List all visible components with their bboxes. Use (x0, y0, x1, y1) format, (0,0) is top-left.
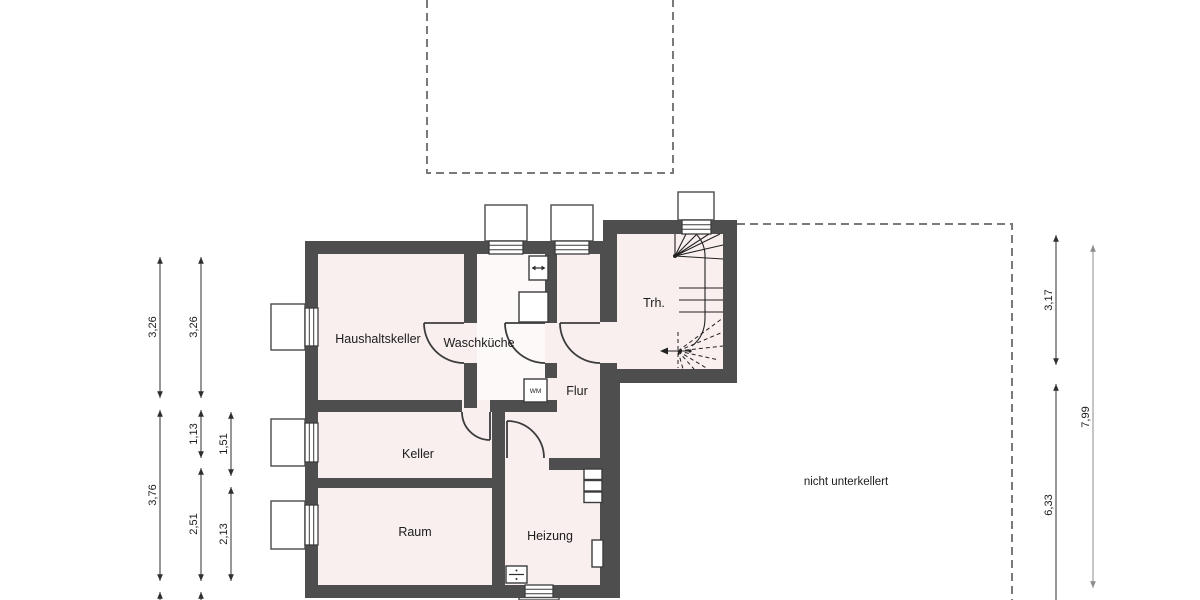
wall (723, 220, 737, 383)
dimension-label: 2,51 (188, 513, 200, 534)
window-symbol (305, 505, 318, 545)
dimension-label: 7,99 (1080, 406, 1092, 427)
window-treppenhaus-top (678, 192, 714, 234)
dimensions-left: 3,26 3,76 3,26 1,13 2,51 1,51 2,13 (147, 257, 231, 600)
window-symbol (682, 220, 711, 234)
wall-mounted-box (592, 540, 603, 567)
wall (603, 220, 617, 254)
window-symbol (525, 585, 553, 598)
upper-floor-dashed-outline (427, 0, 673, 173)
wall-hatch-arrow-box (529, 256, 548, 280)
wall (549, 458, 613, 470)
dimension-label: 6,33 (1043, 494, 1055, 515)
washing-machine-box: WM (524, 379, 547, 402)
light-well (551, 205, 593, 241)
dimension-label: 3,26 (147, 316, 159, 337)
dimensions-right: 3,17 6,33 7,99 (1043, 235, 1093, 600)
window-waschkueche-top (485, 205, 527, 254)
wall (318, 400, 462, 412)
wall (603, 220, 737, 234)
wall (492, 412, 505, 585)
floor-plan-canvas: WM Haushaltskeller Waschküche Flur Kelle… (0, 0, 1200, 600)
window-flur-top (551, 205, 593, 254)
meter-box-3 (584, 492, 602, 503)
dimension-label: 3,17 (1043, 289, 1055, 310)
room-label-keller: Keller (402, 447, 434, 461)
dimension-label: 2,13 (218, 523, 230, 544)
not-excavated-dashed-outline (737, 224, 1012, 600)
wall (305, 585, 620, 598)
room-label-raum: Raum (398, 525, 431, 539)
dimension-label: 1,51 (218, 433, 230, 454)
room-label-haushaltskeller: Haushaltskeller (335, 332, 420, 346)
meter-box-1 (584, 469, 602, 480)
window-symbol (305, 308, 318, 346)
floor-plan-drawing: WM Haushaltskeller Waschküche Flur Kelle… (0, 0, 1200, 600)
room-label-flur: Flur (566, 384, 588, 398)
wall (545, 363, 557, 378)
dimension-label: 3,76 (147, 484, 159, 505)
window-symbol (489, 241, 523, 254)
window-raum-left (271, 501, 318, 549)
wall (464, 254, 477, 323)
light-well (271, 304, 305, 350)
wall (318, 478, 492, 488)
window-heizung-bottom (519, 585, 559, 600)
room-fill-treppenhaus (603, 220, 737, 383)
light-well (678, 192, 714, 220)
room-label-waschkueche: Waschküche (443, 336, 514, 350)
window-symbol (555, 241, 589, 254)
room-label-heizung: Heizung (527, 529, 573, 543)
dimension-label: 3,26 (188, 316, 200, 337)
room-label-treppenhaus: Trh. (643, 296, 665, 310)
window-keller-left (271, 419, 318, 466)
drain-dot-bottom (516, 578, 518, 580)
light-well (271, 419, 305, 466)
annotation-not-excavated: nicht unterkellert (804, 476, 889, 488)
window-haushaltskeller-left (271, 304, 318, 350)
window-symbol (305, 423, 318, 462)
light-well (485, 205, 527, 241)
stair-start-dot (688, 349, 691, 352)
appliance-box (519, 292, 548, 322)
meter-box-2 (584, 481, 602, 492)
wall (603, 369, 737, 383)
wall (464, 363, 477, 408)
floor-drain-box (506, 566, 527, 583)
dimension-label: 1,13 (188, 423, 200, 444)
drain-dot-top (516, 570, 518, 572)
washing-machine-label: WM (530, 388, 542, 395)
light-well (271, 501, 305, 549)
